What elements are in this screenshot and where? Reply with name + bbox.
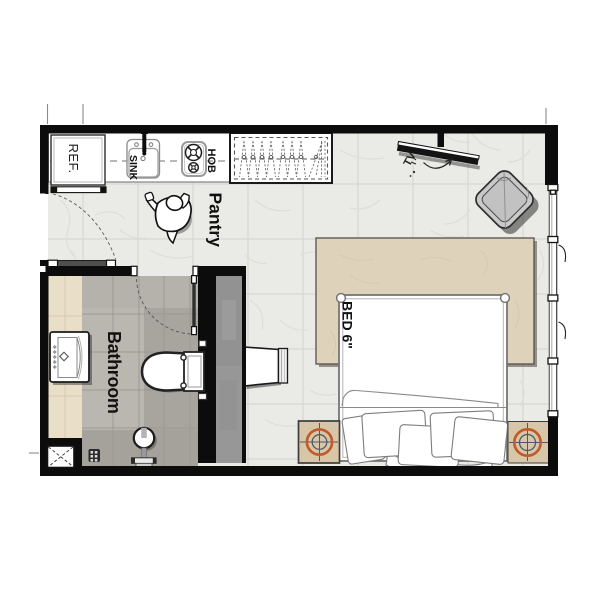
svg-text:Pantry: Pantry	[206, 193, 226, 248]
svg-text:HOB: HOB	[205, 149, 217, 174]
svg-text:SINK: SINK	[127, 155, 139, 181]
svg-text:REF.: REF.	[66, 144, 81, 174]
svg-text:BED 6": BED 6"	[340, 301, 356, 349]
svg-text:Bathroom: Bathroom	[104, 331, 124, 414]
